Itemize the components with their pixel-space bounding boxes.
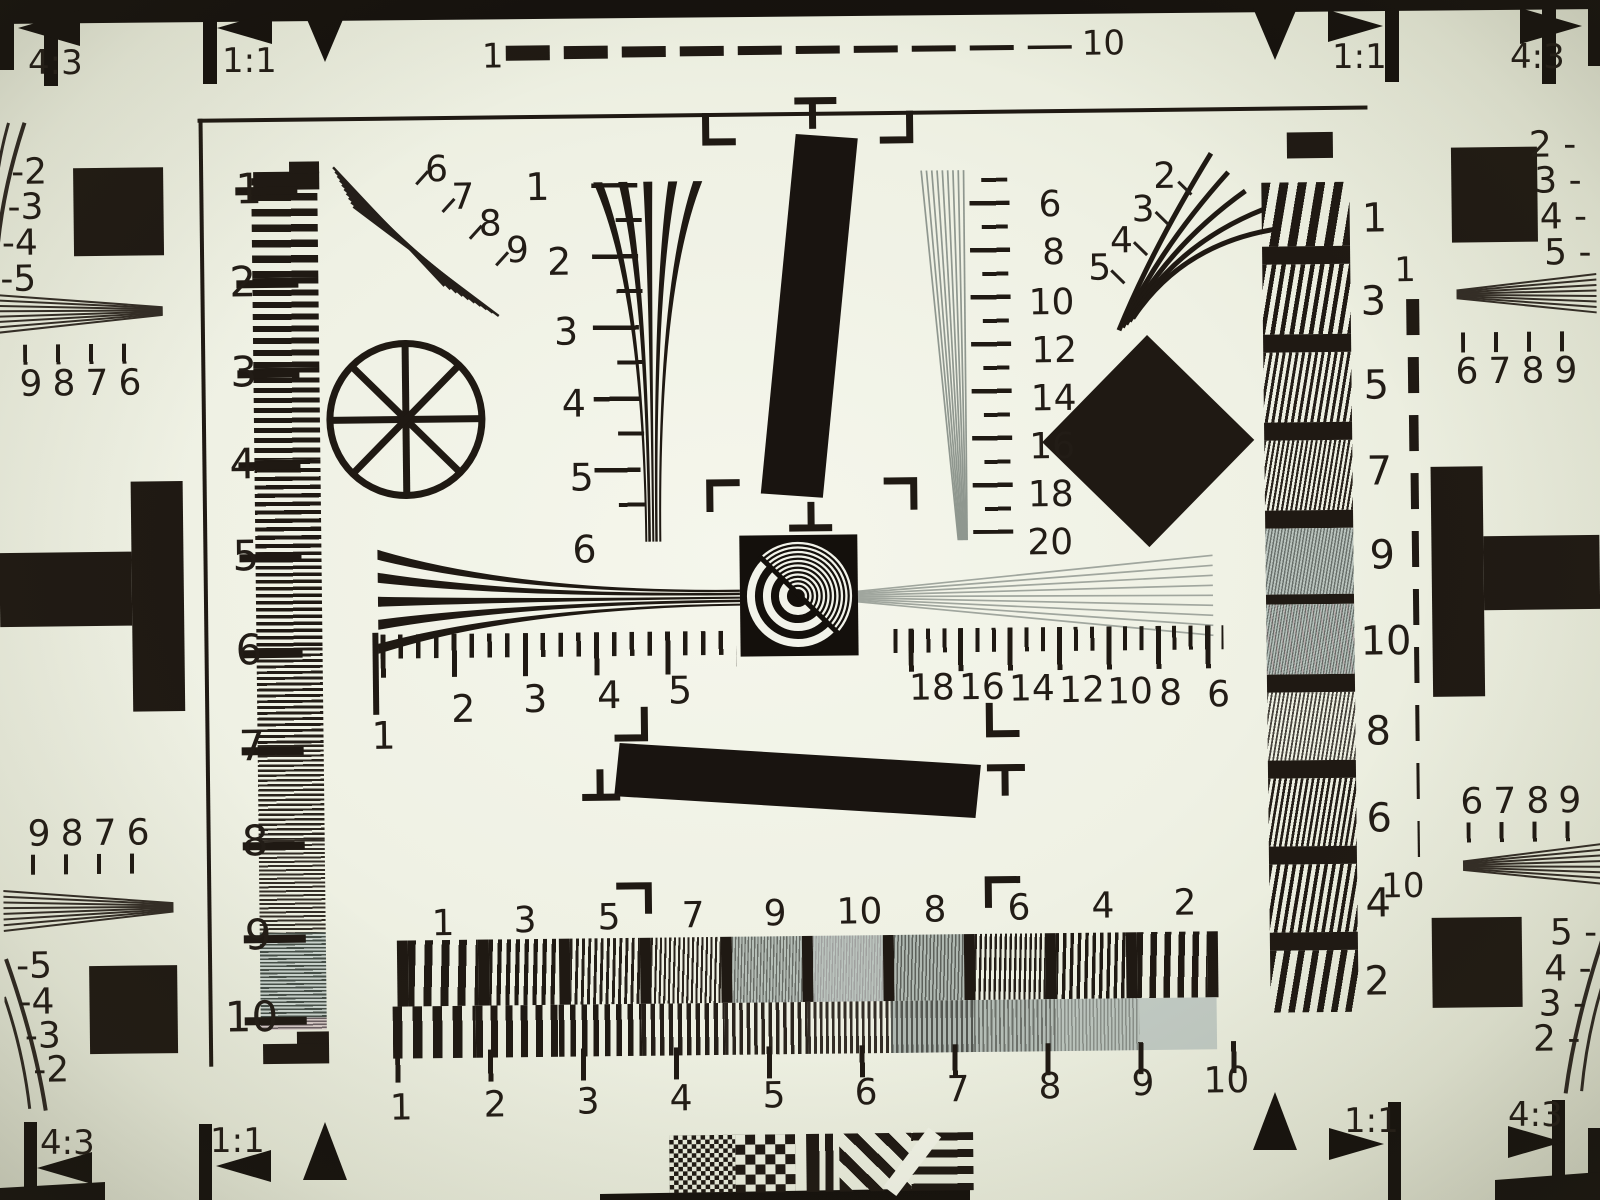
edge-digit: 6 (1460, 784, 1483, 820)
vertical-wedge-right (921, 170, 968, 540)
sweep-label: 7 (946, 1072, 969, 1108)
v-wedge-right-label: 6 (1038, 187, 1061, 223)
h-scale-left-label: 5 (668, 671, 693, 709)
t-shape-right (1431, 466, 1486, 697)
v-wedge-left-label: 2 (547, 243, 572, 281)
h-scale-left-label: 4 (597, 676, 622, 714)
band-label: 2 (1173, 886, 1196, 922)
right-column-group-5 (1263, 352, 1352, 423)
ruler-flag (289, 161, 319, 173)
band-separator (1207, 931, 1219, 997)
v-wedge-left-label: 4 (562, 384, 587, 422)
edge-neg-label: 4 - (1544, 951, 1592, 988)
v-wedge-left-label: 3 (554, 313, 579, 351)
band-group-3 (489, 939, 560, 1006)
band-separator (883, 935, 895, 1001)
sweep-label: 3 (576, 1084, 599, 1120)
h-scale-left-first-tick (372, 633, 379, 715)
edge-digit: 8 (1521, 354, 1544, 390)
edge-digit: 9 (1558, 783, 1581, 819)
left-fan-label: 7 (451, 180, 474, 216)
edge-ticks-right-top (1461, 331, 1573, 352)
band-separator (1045, 933, 1057, 999)
left-ruler-label: 8 (241, 820, 268, 862)
band-group-9 (732, 936, 803, 1003)
column-separator (1267, 674, 1355, 693)
h-scale-right-ticks-tall (908, 625, 1224, 672)
v-wedge-right-label: 8 (1042, 235, 1065, 271)
left-ruler-hatch-5 (255, 551, 322, 648)
edge-neg-label: 3 - (1534, 163, 1582, 200)
edge-neg-label: 2 - (1529, 127, 1577, 164)
band-label: 10 (836, 894, 882, 931)
left-ruler-label: 4 (229, 443, 256, 485)
band-separator (559, 939, 571, 1005)
right-column-label: 8 (1365, 711, 1391, 751)
v-wedge-left-ticks-half (616, 218, 645, 508)
band-group-2 (1137, 931, 1208, 998)
right-column-group-2 (1270, 950, 1359, 1013)
sweep-label: 9 (1131, 1066, 1154, 1102)
black-square (1432, 917, 1523, 1008)
right-column-group-3 (1262, 264, 1351, 335)
edge-neg-label: -5 (0, 262, 36, 298)
checkerboard-coarse (735, 1134, 796, 1193)
v-wedge-right-label: 16 (1029, 429, 1075, 466)
right-column-group-9 (1265, 528, 1354, 595)
left-fan-label: 9 (506, 233, 529, 269)
band-separator (478, 940, 490, 1006)
band-group-10 (813, 935, 884, 1002)
left-ruler-label: 5 (232, 535, 259, 577)
slanted-bar-lower (614, 739, 982, 822)
band-label: 4 (1091, 888, 1114, 924)
left-ruler-hatch-2 (252, 277, 319, 368)
edge-neg-label: -2 (33, 1052, 69, 1088)
v-wedge-right-label: 20 (1027, 525, 1073, 562)
left-ruler-label: 2 (229, 261, 256, 303)
v-wedge-left-label: 1 (525, 168, 550, 206)
right-column-label: 7 (1366, 451, 1392, 491)
column-flag (1287, 132, 1333, 159)
band-label: 6 (1007, 890, 1030, 926)
right-column-group-6 (1268, 778, 1357, 847)
right-fan-label: 3 (1131, 192, 1154, 228)
edge-digit: 9 (27, 817, 50, 853)
right-column-group-7 (1264, 440, 1353, 511)
left-fan-label: 8 (479, 206, 502, 242)
right-dashed-scale (1406, 299, 1425, 857)
band-group-6 (975, 933, 1046, 1000)
h-scale-left-label: 2 (451, 690, 476, 728)
edge-ticks-left-top (23, 344, 135, 365)
band-label: 3 (513, 903, 536, 939)
sweep-label: 5 (762, 1078, 785, 1114)
edge-fan-right-bottom (1463, 844, 1600, 885)
test-chart-photo: 4:3 1:1 1:1 4:3 4:3 1:1 1:1 4:3 (0, 0, 1600, 1200)
black-square (1451, 147, 1538, 243)
left-ruler-hatch-6 (257, 647, 324, 745)
edge-neg-label: 3 - (1538, 986, 1586, 1023)
band-label: 9 (763, 896, 786, 932)
left-ruler-label: 6 (235, 629, 262, 671)
band-group-4 (1056, 932, 1127, 999)
edge-neg-label: -5 (16, 949, 52, 985)
band-separator (397, 940, 409, 1006)
right-column-label: 3 (1360, 281, 1386, 321)
left-ruler-label: 7 (238, 725, 265, 767)
band-separator (721, 937, 733, 1003)
h-scale-right-label: 16 (959, 670, 1005, 707)
edge-digit: 8 (1526, 784, 1549, 820)
left-ruler-label: 9 (245, 914, 272, 956)
h-scale-left-label: 3 (523, 680, 548, 718)
right-fan-label: 4 (1110, 223, 1133, 259)
edge-neg-label: 2 - (1533, 1021, 1581, 1058)
v-wedge-right-label: 14 (1031, 381, 1077, 418)
left-ruler-label: 3 (230, 351, 257, 393)
top-dash-scale (506, 39, 1072, 60)
ruler-flag (263, 1043, 329, 1064)
edge-fan-left-bottom (3, 889, 173, 931)
edge-digit: 9 (19, 367, 42, 403)
slanted-bar-upper (757, 133, 862, 498)
right-column-group-8 (1267, 692, 1356, 761)
edge-ticks-right-bottom (1467, 821, 1579, 842)
left-ruler-label: 10 (224, 996, 278, 1039)
checkerboard-fine (669, 1135, 736, 1194)
h-scale-right-label: 10 (1107, 674, 1153, 711)
sweep-label: 4 (669, 1081, 692, 1117)
edge-ticks-left-bottom (31, 853, 143, 874)
spoked-wheel (329, 343, 483, 497)
column-separator (1264, 422, 1352, 441)
right-column-label: 2 (1364, 961, 1390, 1001)
edge-digit: 7 (1493, 784, 1516, 820)
left-ruler-hatch-4 (254, 459, 321, 552)
right-column-group-10 (1266, 604, 1355, 675)
band-label: 1 (431, 906, 454, 942)
right-dashed-top-label: 1 (1394, 253, 1416, 287)
right-column-label: 9 (1369, 535, 1395, 575)
edge-neg-label: -3 (7, 190, 43, 226)
edge-digit: 6 (118, 365, 141, 401)
black-square (89, 965, 178, 1054)
right-column-label: 10 (1360, 621, 1411, 662)
sweep-label: 6 (854, 1075, 877, 1111)
black-square (73, 167, 164, 256)
vertical-bars-block (806, 1134, 837, 1192)
sweep-label: 1 (390, 1090, 413, 1126)
right-column-label: 1 (1361, 198, 1387, 238)
left-fan-label: 6 (425, 152, 448, 188)
t-shape-left (131, 481, 186, 712)
right-column-label: 5 (1363, 365, 1389, 405)
edge-neg-label: 4 - (1540, 199, 1588, 236)
left-ruler-hatch-3 (253, 367, 320, 460)
column-separator (1269, 846, 1357, 865)
right-fan-label: 5 (1088, 250, 1111, 286)
curved-fan-right (1117, 153, 1281, 331)
edge-digit: 8 (60, 816, 83, 852)
chart-body: 1 10 1 2 3 4 5 6 7 8 9 10 6 7 8 9 1 2 3 … (0, 0, 1600, 1200)
edge-digit: 9 (1554, 353, 1577, 389)
right-column-label: 6 (1366, 798, 1392, 838)
column-separator (1262, 246, 1350, 265)
band-separator (640, 938, 652, 1004)
edge-digit: 7 (1488, 354, 1511, 390)
sweep-label: 10 (1203, 1063, 1249, 1100)
band-group-5 (570, 938, 641, 1005)
column-separator (1263, 334, 1351, 353)
right-column-group-1 (1261, 182, 1350, 247)
v-wedge-right-label: 10 (1028, 285, 1074, 322)
edge-neg-label: -2 (11, 155, 47, 191)
right-fan-label: 2 (1153, 159, 1176, 195)
column-separator (1268, 760, 1356, 779)
edge-digit: 6 (1455, 354, 1478, 390)
left-ruler-label: 1 (235, 168, 262, 210)
top-scale-end: 10 (1082, 26, 1126, 60)
h-scale-right-label: 6 (1207, 677, 1230, 713)
edge-digit: 7 (85, 366, 108, 402)
h-scale-right-label: 8 (1159, 676, 1182, 712)
band-group-7 (651, 937, 722, 1004)
band-separator (1126, 932, 1138, 998)
v-wedge-left-label: 6 (572, 530, 597, 568)
sweep-label: 8 (1038, 1069, 1061, 1105)
v-wedge-right-label: 18 (1028, 477, 1074, 514)
edge-neg-label: -4 (2, 226, 38, 262)
edge-fan-right-top (1456, 274, 1596, 314)
edge-digit: 7 (93, 816, 116, 852)
top-scale-start: 1 (482, 39, 504, 73)
v-wedge-left-label: 5 (569, 458, 594, 496)
edge-neg-label: 5 - (1544, 235, 1592, 272)
sweep-label: 2 (484, 1087, 507, 1123)
column-separator (1265, 510, 1353, 529)
v-wedge-right-ticks-half (981, 178, 1011, 528)
edge-neg-label: 5 - (1550, 915, 1598, 952)
center-target (739, 534, 858, 656)
h-scale-right-label: 14 (1009, 671, 1055, 708)
v-wedge-right-label: 12 (1031, 333, 1077, 370)
band-separator (964, 934, 976, 1000)
t-shape-left-arm (0, 552, 132, 627)
h-scale-left-label: 1 (371, 717, 396, 755)
band-group-1 (408, 940, 479, 1007)
right-column-group-4 (1269, 864, 1358, 933)
t-shape-right-arm (1483, 535, 1600, 610)
edge-digit: 8 (52, 366, 75, 402)
band-separator (802, 936, 814, 1002)
edge-digit: 6 (126, 815, 149, 851)
h-scale-right-label: 18 (909, 670, 955, 707)
band-label: 8 (923, 892, 946, 928)
band-label: 7 (681, 898, 704, 934)
column-separator (1270, 932, 1358, 951)
band-group-8 (894, 934, 965, 1001)
band-label: 5 (597, 900, 620, 936)
h-scale-right-label: 12 (1059, 673, 1105, 710)
right-dashed-bottom-label: 10 (1381, 869, 1425, 903)
